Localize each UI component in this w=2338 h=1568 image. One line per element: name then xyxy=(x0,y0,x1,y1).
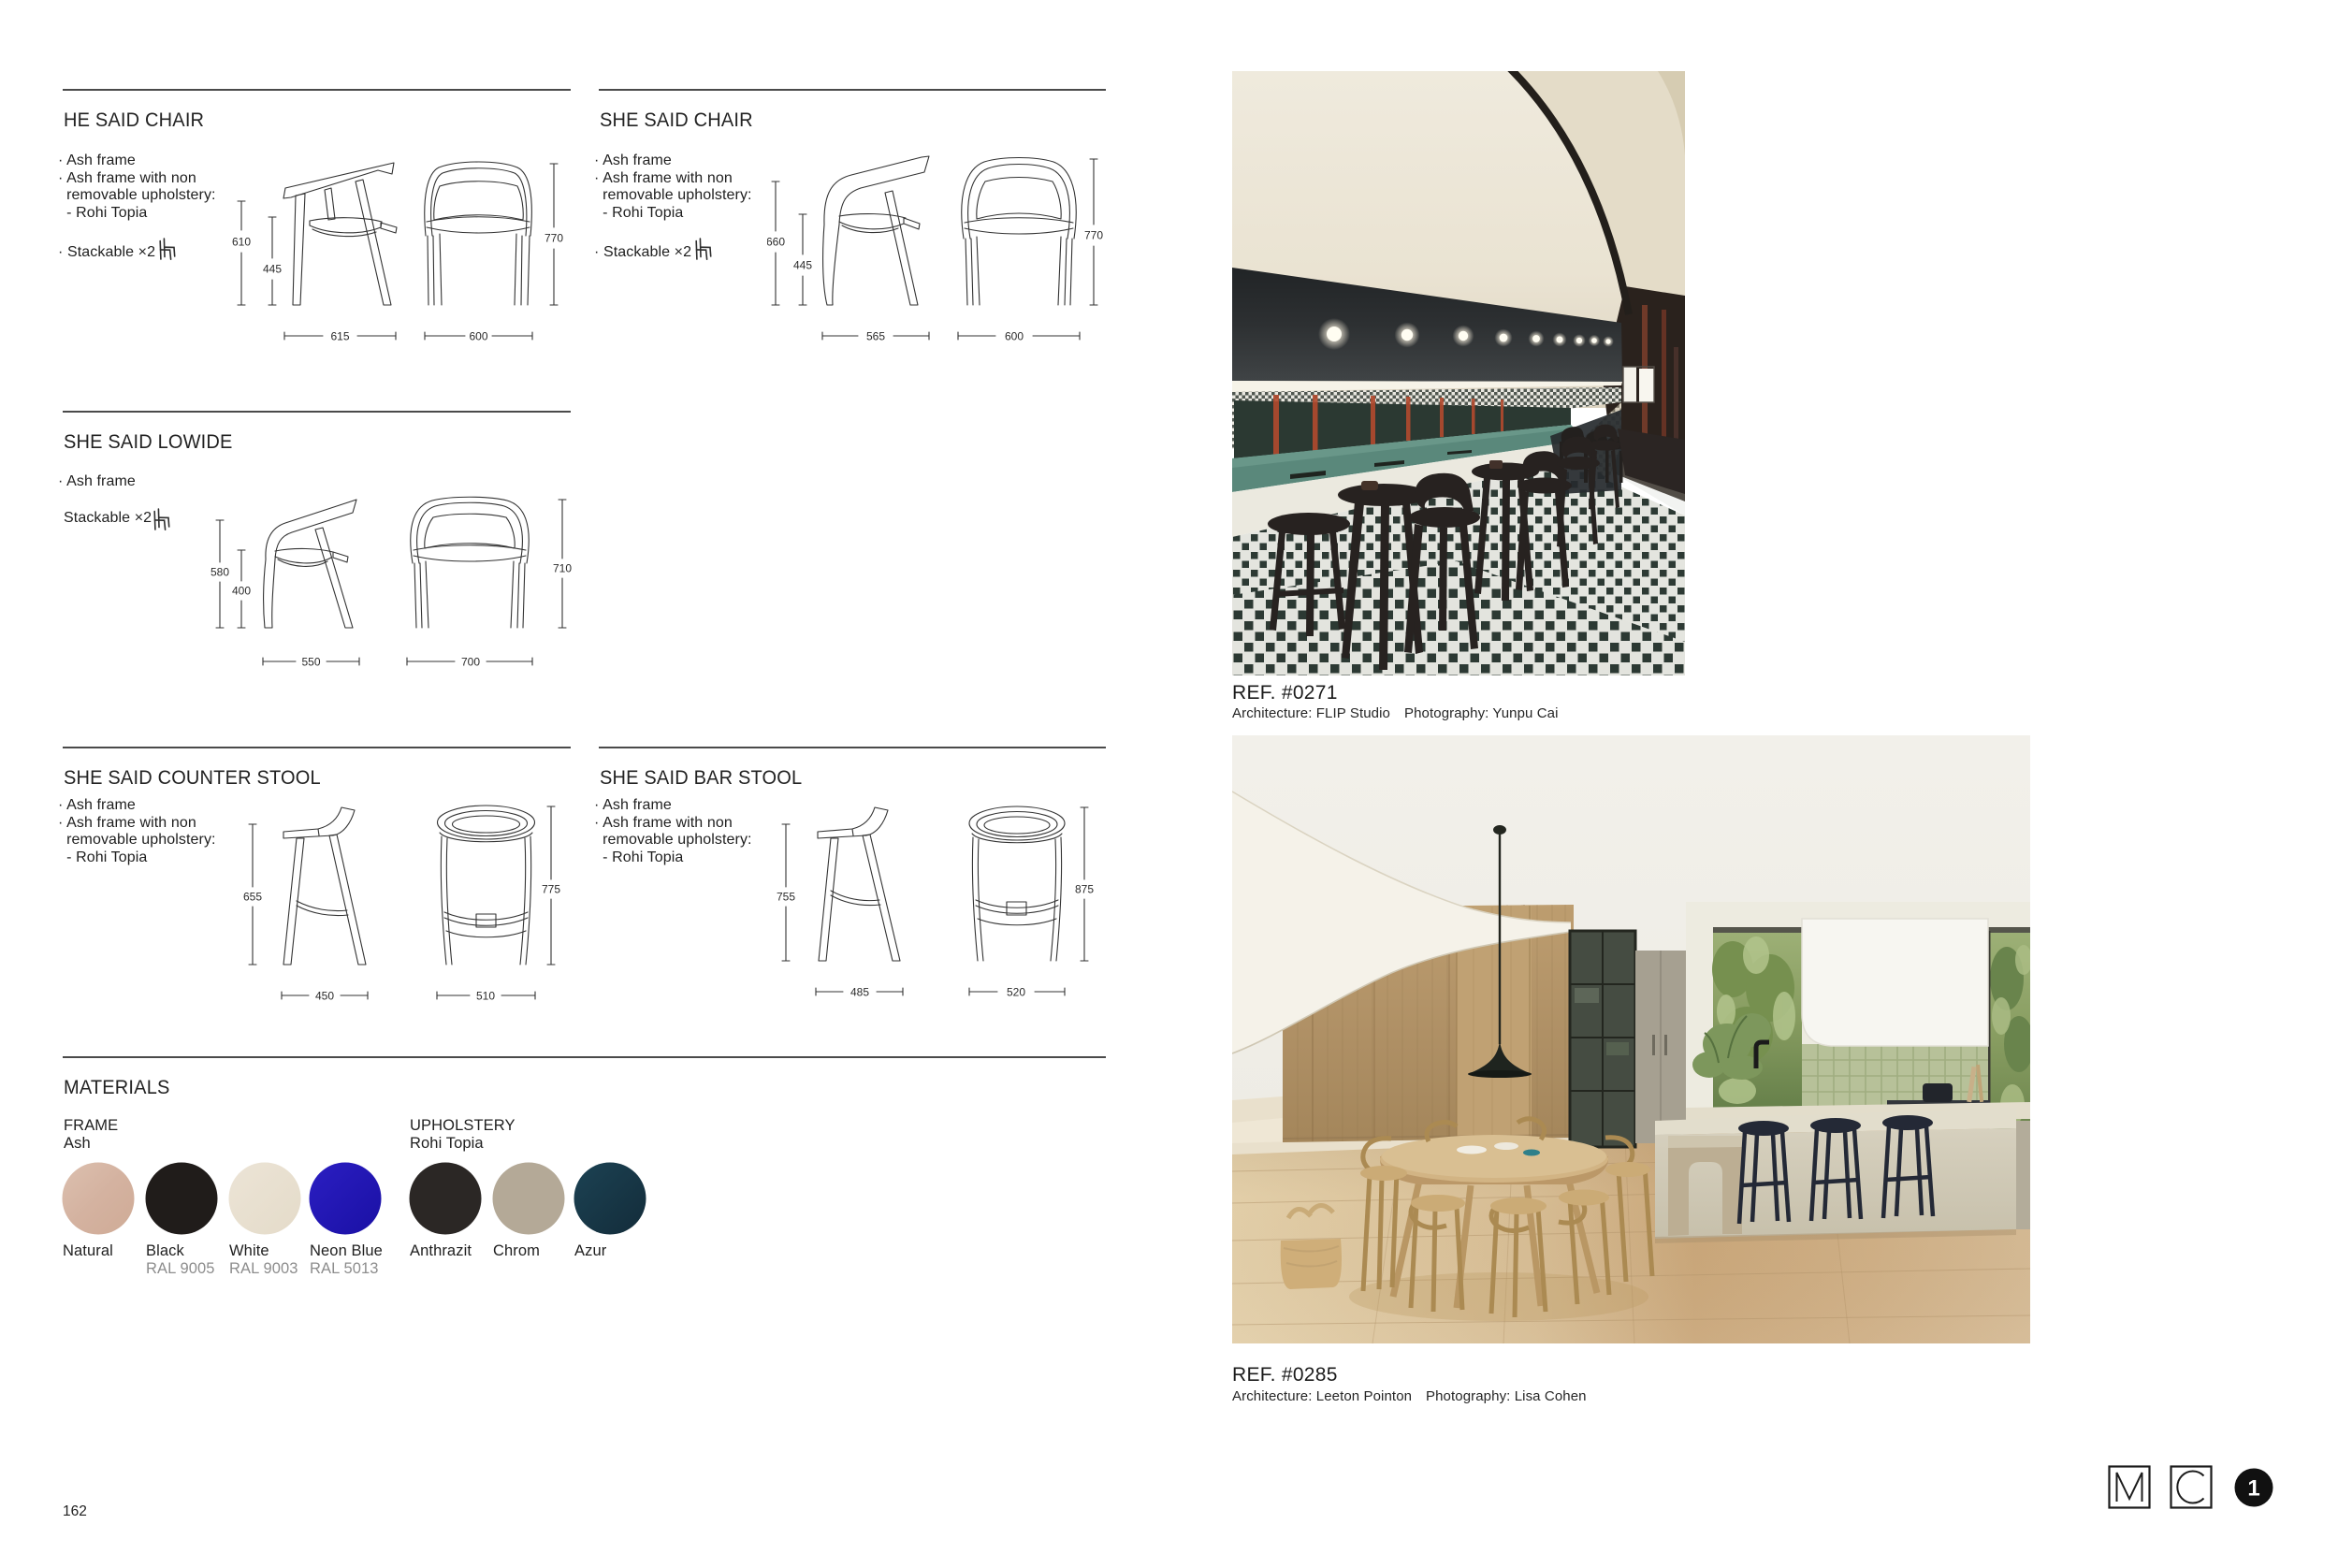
svg-text:660: 660 xyxy=(767,236,785,249)
svg-text:580: 580 xyxy=(211,566,229,579)
svg-text:710: 710 xyxy=(553,562,572,575)
svg-text:615: 615 xyxy=(330,330,349,343)
svg-text:755: 755 xyxy=(777,891,795,904)
svg-text:445: 445 xyxy=(793,259,812,272)
svg-text:770: 770 xyxy=(545,232,563,245)
svg-text:400: 400 xyxy=(232,585,251,598)
svg-text:600: 600 xyxy=(469,330,487,343)
svg-text:445: 445 xyxy=(263,263,282,276)
svg-text:775: 775 xyxy=(542,883,560,896)
svg-text:770: 770 xyxy=(1084,229,1103,242)
svg-text:1: 1 xyxy=(2247,1476,2259,1502)
svg-text:875: 875 xyxy=(1075,883,1094,896)
svg-text:565: 565 xyxy=(866,330,885,343)
svg-text:700: 700 xyxy=(461,656,480,669)
svg-text:520: 520 xyxy=(1007,986,1025,999)
svg-text:610: 610 xyxy=(232,236,251,249)
svg-text:655: 655 xyxy=(243,891,262,904)
svg-text:600: 600 xyxy=(1005,330,1024,343)
svg-text:485: 485 xyxy=(850,986,869,999)
svg-text:510: 510 xyxy=(476,990,495,1003)
svg-text:450: 450 xyxy=(315,990,334,1003)
svg-text:550: 550 xyxy=(301,656,320,669)
